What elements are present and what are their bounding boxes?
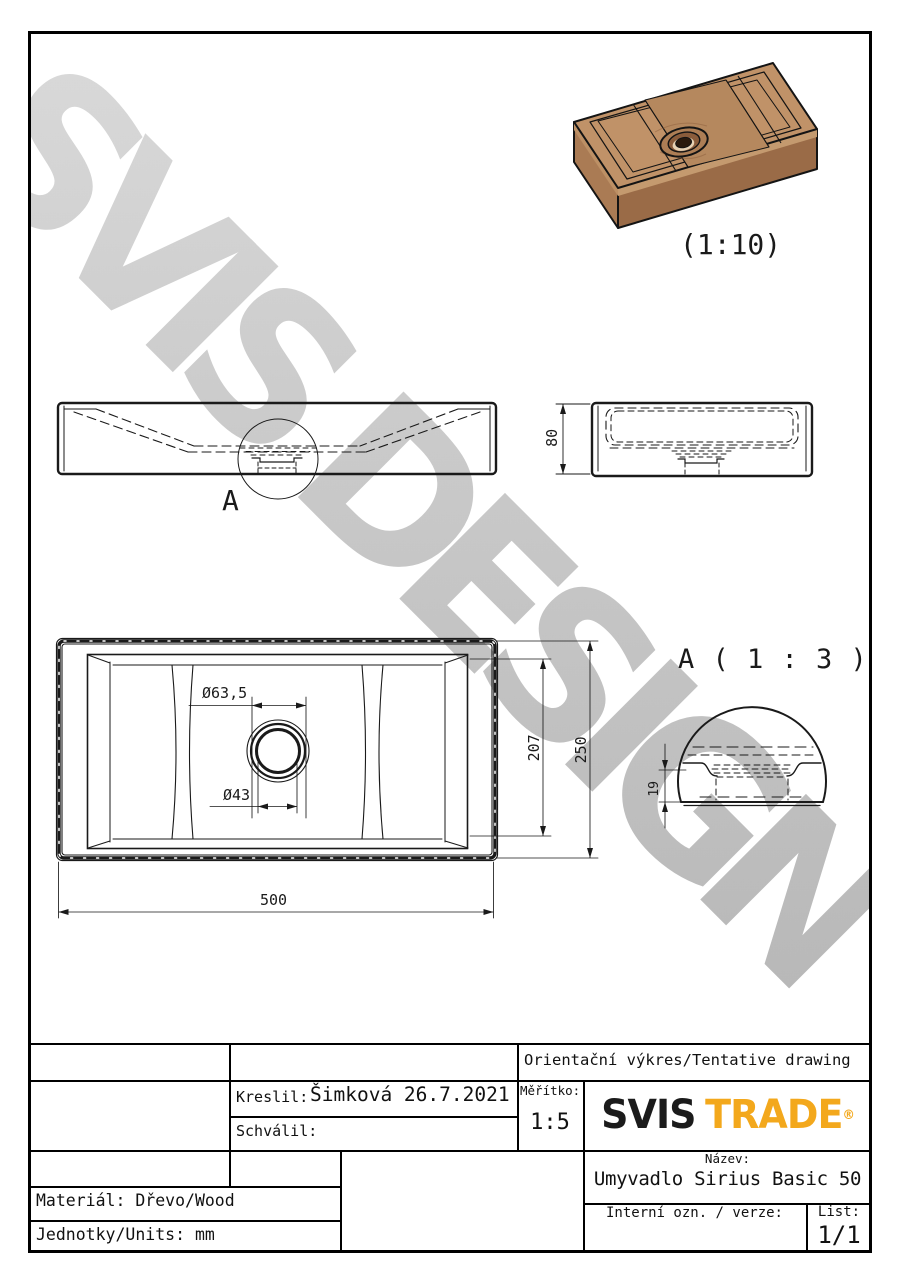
sheet-label: List: xyxy=(806,1204,872,1220)
tentative-note: Orientační výkres/Tentative drawing xyxy=(524,1051,851,1069)
dim-hole-label: Ø43 xyxy=(223,788,250,804)
drawn-by-value: Šimková 26.7.2021 xyxy=(310,1083,510,1106)
dim-depth-label: 250 xyxy=(574,732,590,768)
detail-marker-label: A xyxy=(222,486,239,515)
dim-flange-label: Ø63,5 xyxy=(202,686,247,702)
front-view xyxy=(58,403,496,499)
iso-scale-label: (1:10) xyxy=(680,230,781,259)
scale-label: Měřítko: xyxy=(520,1083,580,1098)
name-label: Název: xyxy=(583,1151,872,1166)
detail-title: A ( 1 : 3 ) xyxy=(678,646,868,674)
company-logo: SVIS TRADE ® xyxy=(590,1080,865,1150)
dim-width-label: 500 xyxy=(260,893,287,909)
name-value: Umyvadlo Sirius Basic 50 xyxy=(583,1168,872,1190)
dim-width-500 xyxy=(59,862,494,918)
approved-by-label: Schválil: xyxy=(236,1122,317,1140)
units-value: Jednotky/Units: mm xyxy=(36,1225,215,1244)
top-view xyxy=(57,639,599,919)
drawn-by-label: Kreslil: xyxy=(236,1088,308,1106)
dim-inner-depth-label: 207 xyxy=(527,730,543,766)
detail-callout-circle xyxy=(238,419,318,499)
sheet-value: 1/1 xyxy=(806,1221,872,1249)
detail-view xyxy=(659,707,826,828)
scale-value: 1:5 xyxy=(517,1110,583,1135)
dim-rim-label: 19 xyxy=(648,778,662,800)
logo-secondary: TRADE xyxy=(705,1092,842,1138)
registered-trademark-icon: ® xyxy=(842,1108,853,1123)
material-value: Materiál: Dřevo/Wood xyxy=(36,1191,235,1210)
logo-primary: SVIS xyxy=(601,1092,695,1138)
side-view xyxy=(556,403,812,476)
iso-view xyxy=(574,63,817,228)
internal-ref-label: Interní ozn. / verze: xyxy=(583,1205,806,1221)
drawing-sheet: { "drawing": { "iso_scale_label": "(1:10… xyxy=(0,0,900,1288)
dim-height-label: 80 xyxy=(545,423,561,453)
